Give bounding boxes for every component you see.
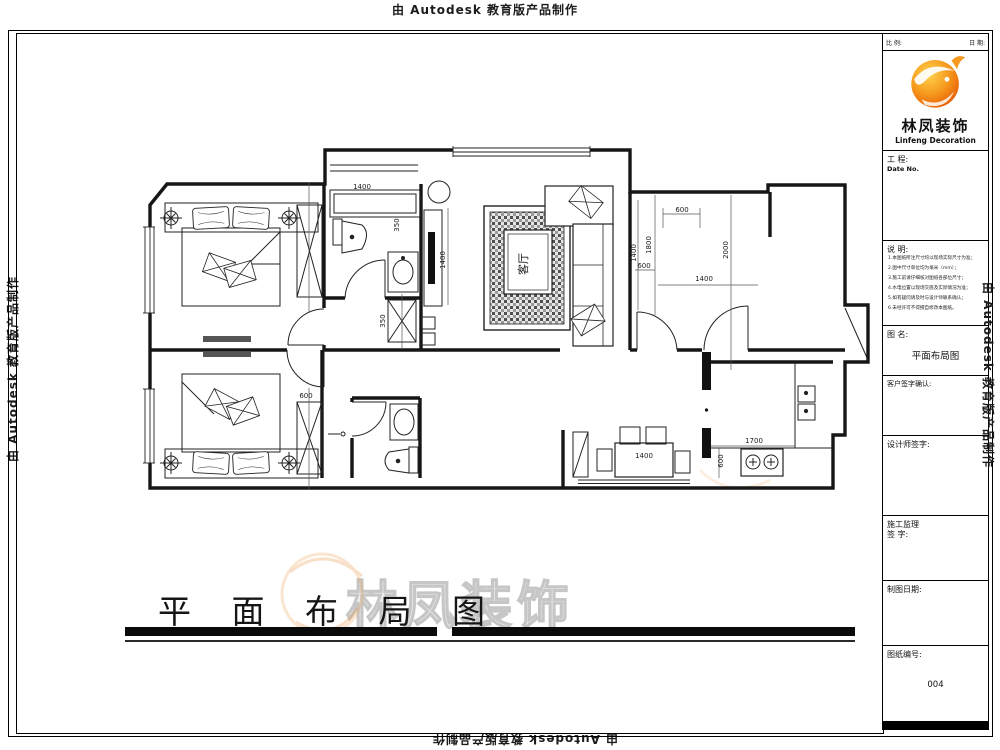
drawing-title: 平 面 布 局 图: [158, 585, 500, 633]
drawing-name-label: 图 名:: [887, 329, 908, 340]
dim-text: 350: [379, 314, 387, 327]
dim-text: 1400: [353, 183, 371, 191]
dim-text: 1400: [439, 251, 447, 269]
designer-signature-label: 设计师签字:: [887, 439, 930, 450]
scale-label: 比 例:: [883, 34, 936, 50]
dim-text: 350: [393, 218, 401, 231]
note-line: 4.水电位置以现场交底及实际情况为准；: [888, 285, 970, 291]
dim-text: 1700: [745, 437, 763, 445]
title-underline-bar-right: [452, 627, 855, 636]
dim-text: 600: [637, 262, 650, 270]
supervisor-label-line2: 签 字:: [887, 529, 908, 540]
dim-text: 600: [675, 206, 688, 214]
note-line: 2.图中尺寸单位均为毫米（mm）；: [888, 265, 959, 271]
second-bedroom: [160, 374, 322, 490]
dining-area: [573, 427, 690, 477]
draw-date-label: 制图日期:: [887, 584, 922, 595]
brand-name-cn: 林凤装饰: [883, 115, 988, 136]
kitchen-sliding-door: [702, 352, 711, 458]
note-line: 1.本图纸所注尺寸均以现场实际尺寸为准；: [888, 255, 975, 261]
dim-text: 1800: [645, 236, 653, 254]
company-logo-cell: 林凤装饰 Linfeng Decoration: [883, 51, 988, 151]
bathroom-bottom: [328, 404, 418, 473]
title-underline-thin: [125, 640, 855, 642]
dim-text: 1400: [635, 452, 653, 460]
dim-text: 1400: [695, 275, 713, 283]
date-label: 日 期:: [936, 34, 989, 50]
phoenix-logo-icon: [904, 51, 968, 113]
master-bedroom: [160, 182, 322, 357]
note-line: 6.未经许可不得擅自修改本图纸。: [888, 305, 957, 311]
title-block-header-row: 比 例: 日 期:: [883, 34, 988, 51]
bathroom-top: [330, 190, 420, 348]
client-signature-field: 客户签字确认:: [883, 376, 988, 436]
sheet-number-value: 004: [883, 680, 988, 690]
note-line: 3.施工前请仔细核对图纸各部位尺寸；: [888, 275, 966, 281]
dim-text: 2000: [722, 241, 730, 259]
autodesk-watermark-right: 由 Autodesk 教育版产品制作: [980, 282, 997, 468]
notes-label: 说 明:: [887, 244, 908, 255]
brand-name-en: Linfeng Decoration: [883, 136, 988, 145]
title-underline-bar-left: [125, 627, 437, 636]
designer-signature-field: 设计师签字:: [883, 436, 988, 516]
drawing-sheet: 由 Autodesk 教育版产品制作 由 Autodesk 教育版产品制作 由 …: [0, 0, 1000, 750]
living-room-label: 客厅: [516, 253, 530, 275]
title-block-bottom-bar: [883, 722, 988, 729]
draw-date-field: 制图日期:: [883, 581, 988, 646]
dim-text: 1400: [630, 244, 638, 262]
project-value: Date No.: [887, 165, 919, 173]
sheet-number-field: 图纸编号: 004: [883, 646, 988, 722]
floor-plan: 1400 1400 1400 600 1800 600 2000 1400 14…: [0, 0, 1000, 750]
notes-field: 说 明: 1.本图纸所注尺寸均以现场实际尺寸为准； 2.图中尺寸单位均为毫米（m…: [883, 241, 988, 326]
project-label: 工 程:: [887, 154, 908, 165]
drawing-name-value: 平面布局图: [883, 348, 988, 362]
dim-text: 600: [717, 454, 725, 467]
supervisor-signature-field: 施工监理 签 字:: [883, 516, 988, 581]
title-block: 比 例: 日 期: 林凤装饰 Linfeng Decoration: [882, 33, 989, 730]
client-signature-label: 客户签字确认:: [887, 379, 931, 389]
note-line: 5.如有疑问请及时与设计师联系确认；: [888, 295, 966, 301]
dim-text: 600: [299, 392, 312, 400]
drawing-name-field: 图 名: 平面布局图: [883, 326, 988, 376]
entry-balcony: [845, 308, 868, 360]
project-field: 工 程: Date No.: [883, 151, 988, 241]
sheet-number-label: 图纸编号:: [887, 649, 922, 660]
